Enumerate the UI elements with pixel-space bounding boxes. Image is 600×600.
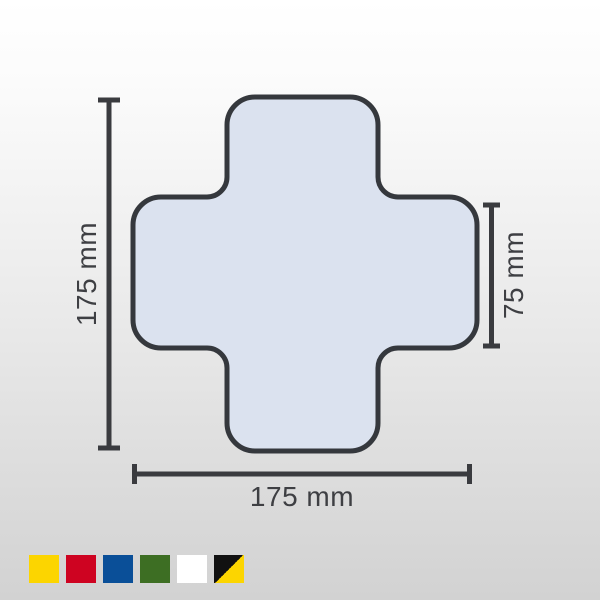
swatch-black-yellow [214,555,244,583]
swatch-white [177,555,207,583]
cross-shape [133,97,477,451]
dimension-label-width: 175 mm [250,481,354,513]
swatch-yellow [29,555,59,583]
swatch-green [140,555,170,583]
dimension-label-height: 175 mm [71,222,103,326]
dimension-label-arm: 75 mm [498,231,530,319]
product-dimension-diagram: 175 mm 75 mm 175 mm [0,0,600,600]
swatch-blue [103,555,133,583]
color-swatch-row [29,555,244,583]
swatch-red [66,555,96,583]
